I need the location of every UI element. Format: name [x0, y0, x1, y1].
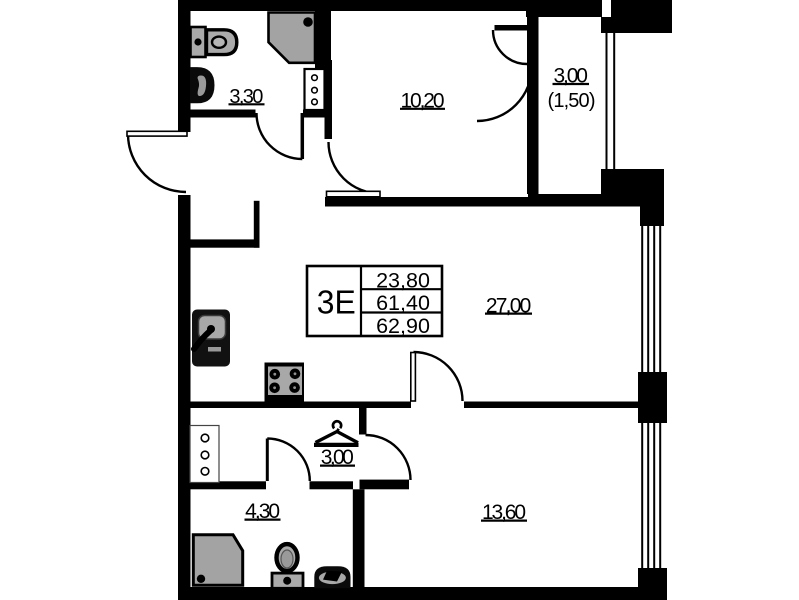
svg-text:(1,50): (1,50) — [548, 90, 596, 112]
svg-text:62,90: 62,90 — [376, 314, 430, 338]
svg-text:3Е: 3Е — [317, 284, 356, 321]
svg-text:61,40: 61,40 — [376, 291, 430, 315]
svg-text:23,80: 23,80 — [376, 268, 430, 292]
